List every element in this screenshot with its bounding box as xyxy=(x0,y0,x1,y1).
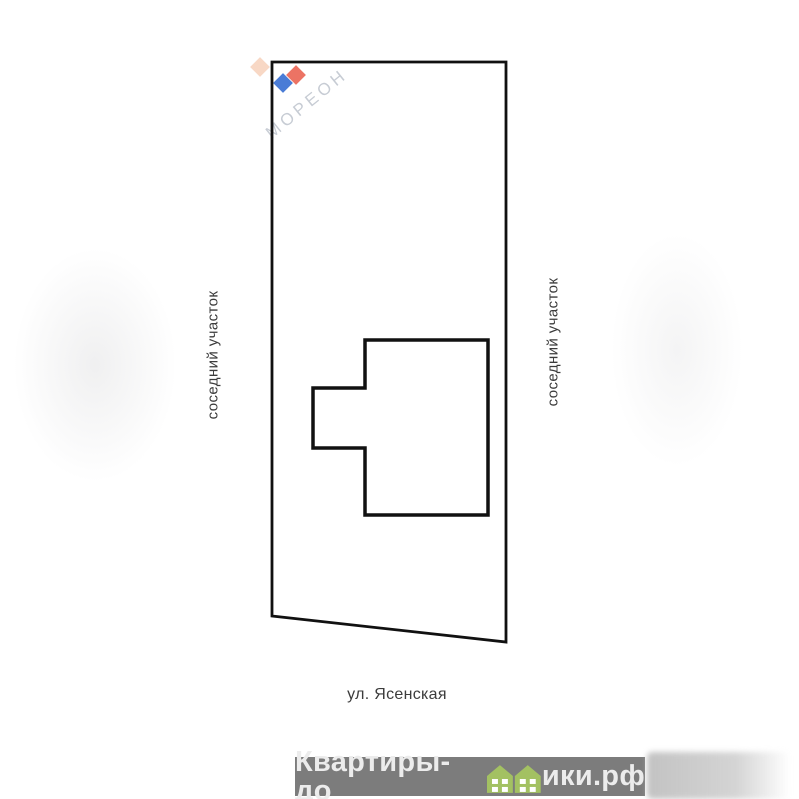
houses-icon xyxy=(486,762,542,794)
footer-fade-block xyxy=(647,752,790,799)
page: МОРЕОН соседний участок соседний участок… xyxy=(0,0,799,799)
site-plan xyxy=(0,0,799,799)
house-icon-left xyxy=(487,765,513,793)
house-footprint xyxy=(313,340,488,515)
street-label: ул. Ясенская xyxy=(347,686,447,704)
footer-text-before: Квартиры-до xyxy=(295,748,486,799)
neighbor-label-left: соседний участок xyxy=(205,291,222,420)
footer-watermark: Квартиры-до ики.рф xyxy=(295,757,645,796)
footer-text-after: ики.рф xyxy=(542,762,645,791)
neighbor-label-right: соседний участок xyxy=(545,278,562,407)
house-icon-right xyxy=(515,765,541,793)
